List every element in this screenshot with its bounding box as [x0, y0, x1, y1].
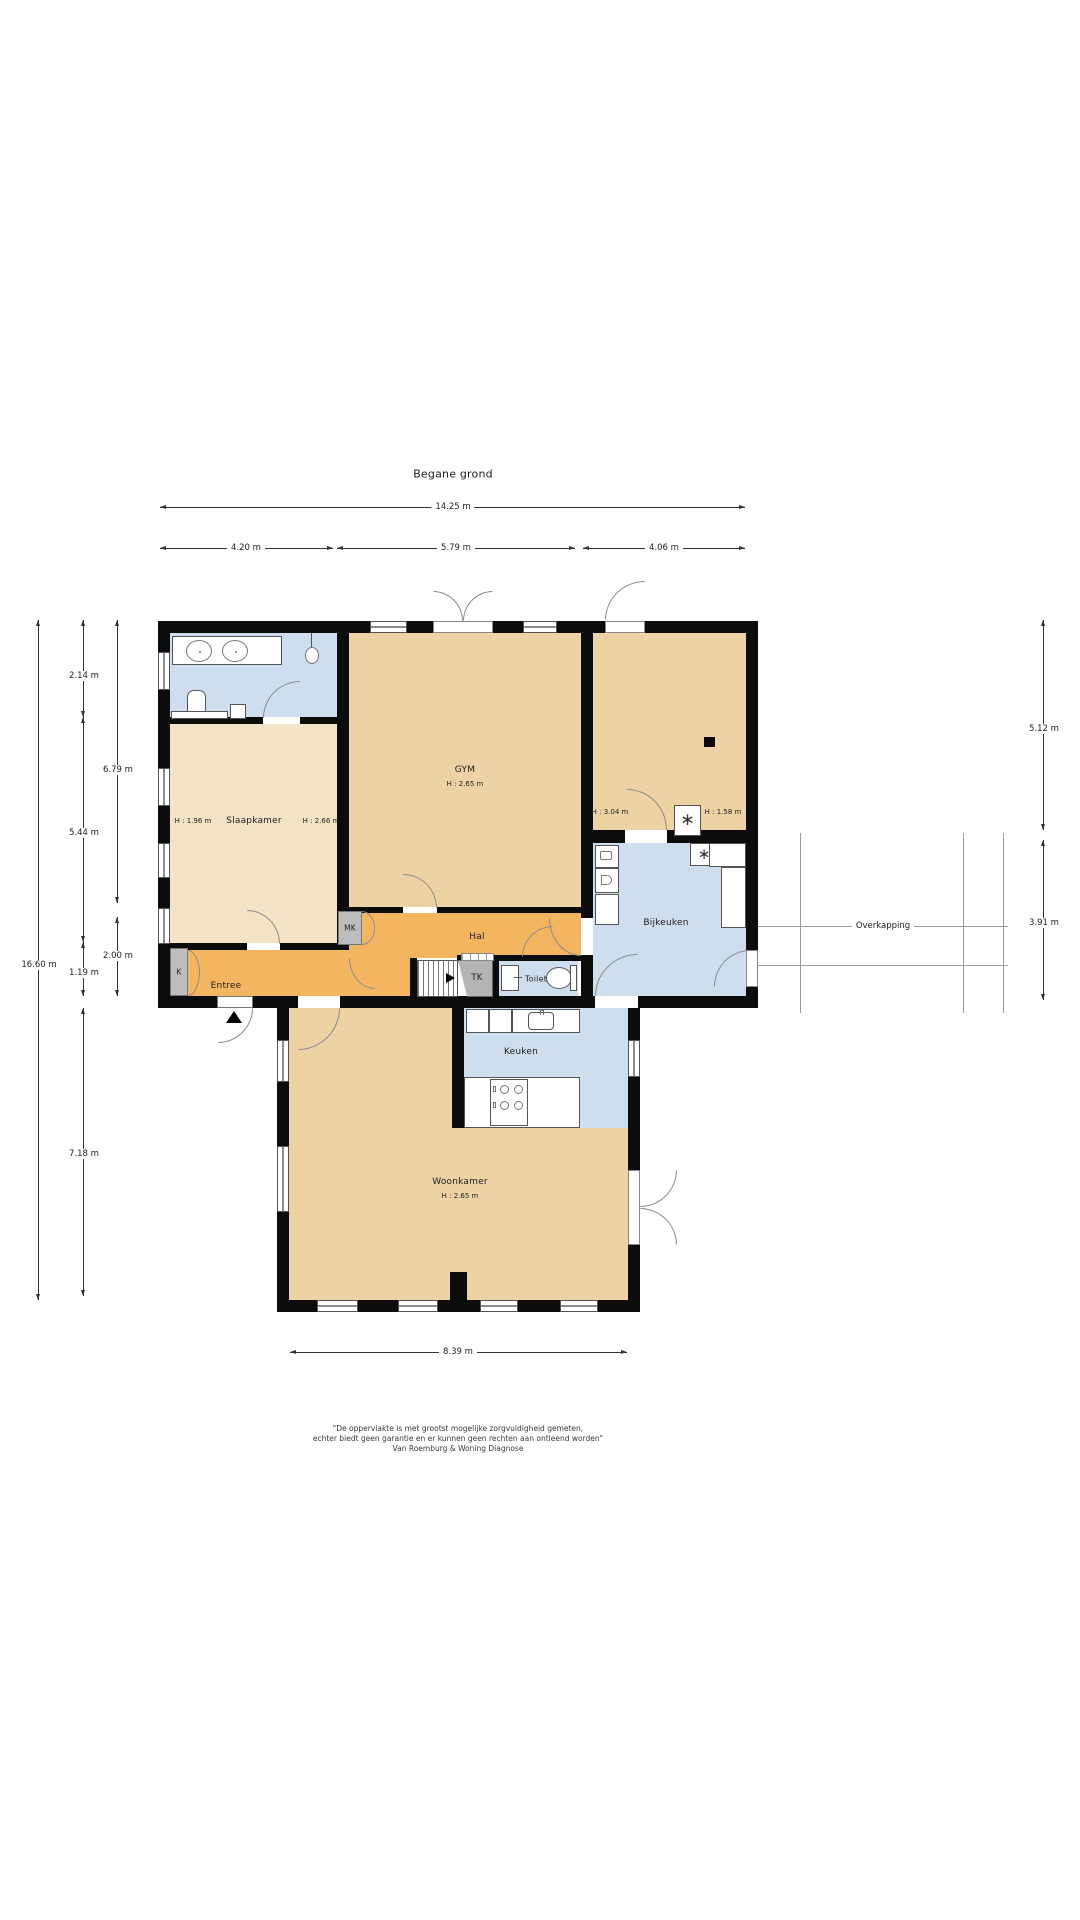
height-label-rightroom-left: H : 3.04 m: [592, 808, 629, 816]
door-opening-entree-woonkamer: [298, 996, 340, 1008]
window-left-3: [158, 843, 170, 878]
window-top-2: [523, 621, 557, 633]
dim-label-left-b1: 6.79 m: [99, 765, 137, 775]
height-label-slaapkamer-right: H : 2.66 m: [303, 817, 340, 825]
overkapping-line: [963, 833, 964, 1013]
sink-icon: [186, 640, 212, 662]
page-title: Begane grond: [413, 468, 493, 481]
disclaimer-line-2: echter biedt geen garantie en er kunnen …: [313, 1434, 603, 1444]
shower-stem: [311, 633, 312, 648]
dim-label-right-2: 3.91 m: [1025, 918, 1063, 928]
window-left-4: [158, 908, 170, 944]
door-arc: [605, 581, 645, 620]
dim-line-left-a1: [83, 620, 84, 717]
disclaimer-line-3: Van Roemburg & Woning Diagnose: [313, 1444, 603, 1454]
dim-label-top-seg1: 4.20 m: [227, 543, 265, 553]
stair-railing: [461, 953, 494, 961]
dim-label-bottom: 8.39 m: [439, 1347, 477, 1357]
french-door-woonkamer: [628, 1170, 640, 1245]
height-label-rightroom-right: H : 1.58 m: [705, 808, 742, 816]
bath-box: [230, 704, 246, 719]
wall-keuken-divider: [452, 1008, 464, 1128]
window-top-1: [370, 621, 407, 633]
window-left-2: [158, 768, 170, 806]
washer-icon: [595, 868, 619, 893]
dim-label-left-a3: 1.19 m: [65, 968, 103, 978]
sink-icon: [222, 640, 248, 662]
door-opening-hal-bijkeuken: [581, 918, 593, 955]
wall-slaapkamer-gym: [337, 633, 349, 950]
door-rightroom-exterior: [605, 621, 645, 633]
room-label-woonkamer: Woonkamer: [432, 1177, 487, 1187]
toilet-sink-icon: [501, 965, 519, 991]
door-arc: [218, 1008, 253, 1043]
wall-rightroom-bottom: [593, 830, 746, 843]
door-opening-slaapkamer: [247, 943, 280, 950]
french-door-arc: [640, 1208, 677, 1245]
room-label-gym: GYM: [455, 765, 475, 775]
window-lower-left-1: [277, 1040, 289, 1082]
room-label-hal: Hal: [469, 932, 484, 942]
height-label-woonkamer: H : 2.65 m: [442, 1192, 479, 1200]
disclaimer: "De oppervlakte is met grootst mogelijke…: [313, 1424, 603, 1454]
dim-label-left-b2: 2.00 m: [99, 951, 137, 961]
room-label-slaapkamer: Slaapkamer: [226, 816, 282, 826]
toilet-tank: [570, 965, 577, 991]
stair-direction-arrow: [446, 973, 455, 983]
window-bottom-1: [317, 1300, 358, 1312]
ventilation-icon: ∗: [674, 805, 701, 836]
french-door-gym: [433, 621, 493, 633]
room-label-entree: Entree: [211, 981, 242, 991]
dim-label-left-a2: 5.44 m: [65, 828, 103, 838]
stove-icon: [490, 1079, 528, 1126]
disclaimer-line-1: "De oppervlakte is met grootst mogelijke…: [313, 1424, 603, 1434]
wall-gym-bottom: [349, 907, 581, 913]
utility-sink-icon: [595, 845, 619, 868]
overkapping-line: [800, 833, 801, 1013]
door-opening-bijkeuken-keuken: [595, 996, 638, 1008]
french-door-arc: [433, 591, 463, 621]
room-label-keuken: Keuken: [504, 1047, 538, 1057]
closet-label-mk: MK: [344, 924, 356, 933]
front-door: [217, 996, 253, 1008]
window-bottom-4: [560, 1300, 598, 1312]
window-bottom-3: [480, 1300, 518, 1312]
french-door-arc: [640, 1170, 677, 1207]
closet-label-tk: TK: [471, 973, 482, 983]
overkapping-label: Overkapping: [852, 921, 914, 931]
appliance-box: [595, 894, 619, 925]
dim-label-top-seg3: 4.06 m: [645, 543, 683, 553]
window-left-1: [158, 652, 170, 690]
dim-label-left-total: 16.60 m: [17, 960, 60, 970]
door-opening-rightroom: [625, 830, 667, 843]
door-opening-badkamer: [263, 717, 300, 724]
kitchen-cabinet: [466, 1009, 489, 1033]
dim-label-left-a1: 2.14 m: [65, 671, 103, 681]
window-bottom-2: [398, 1300, 438, 1312]
counter: [709, 843, 746, 867]
room-label-bijkeuken: Bijkeuken: [643, 918, 688, 928]
kitchen-sink-icon: [528, 1012, 554, 1030]
dim-label-top-seg2: 5.79 m: [437, 543, 475, 553]
window-lower-right-1: [628, 1040, 640, 1077]
room-right: [593, 633, 746, 830]
overkapping-line: [1003, 833, 1004, 1013]
kitchen-cabinet: [489, 1009, 512, 1033]
toilet-bowl-icon: [546, 967, 572, 989]
dim-label-top-total: 14.25 m: [431, 502, 474, 512]
wall-stairs-left: [410, 958, 417, 997]
wall-tk-toilet: [493, 960, 499, 997]
french-door-arc: [463, 591, 493, 621]
room-label-toilet: Toilet: [525, 975, 547, 984]
bath-shelf: [171, 711, 228, 719]
closet-label-k: K: [176, 968, 181, 977]
dim-label-left-a4: 7.18 m: [65, 1149, 103, 1159]
column: [704, 737, 715, 747]
dim-line-left-b1: [117, 620, 118, 903]
window-lower-left-2: [277, 1146, 289, 1212]
floorplan-canvas: Begane grond: [0, 0, 1080, 1920]
shower-head-icon: [305, 647, 319, 664]
dim-label-right-1: 5.12 m: [1025, 724, 1063, 734]
counter: [721, 867, 746, 928]
height-label-gym: H : 2.65 m: [447, 780, 484, 788]
height-label-slaapkamer-left: H : 1.96 m: [175, 817, 212, 825]
wall-stub-bottom: [450, 1272, 467, 1300]
overkapping-line: [758, 965, 1008, 966]
